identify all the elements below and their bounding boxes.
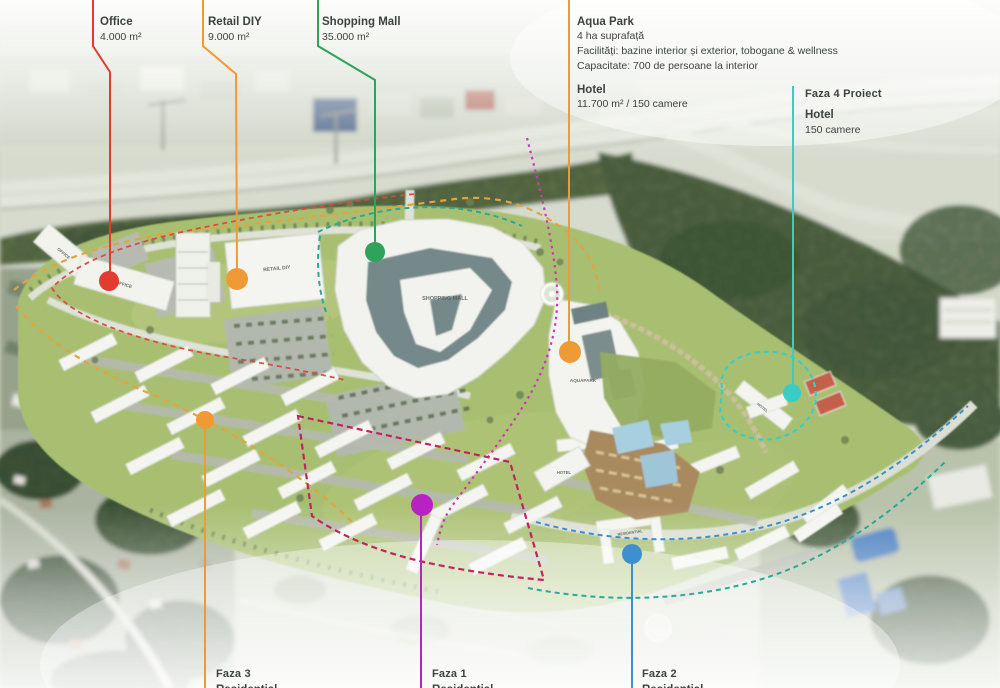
label-top-hotel4: Faza 4 Proiect Hotel 150 camere <box>805 88 882 137</box>
project-name: Aqua Park <box>577 15 838 29</box>
mall-building-label: SHOPPING MALL <box>422 296 468 302</box>
label-top-aquapark: Faza 2 Proiect Aqua Park 4 ha suprafață … <box>577 0 838 112</box>
phase-title: Faza 2 Proiect <box>208 0 285 4</box>
label-top-retail: Faza 2 Proiect Retail DIY 9.000 m² <box>208 0 285 44</box>
label-top-office: Faza 3 Proiect Office 4.000 m² <box>100 0 177 44</box>
project-name: Retail DIY <box>208 15 285 29</box>
marker-faza2-aqua <box>559 341 581 363</box>
phase-title: Faza 3 Proiect <box>100 0 177 4</box>
label-bottom-faza3: Faza 3 Residential <box>216 668 277 688</box>
project-name: Office <box>100 15 177 29</box>
label-top-mall: Faza 1 Proiect Shopping Mall 35.000 m² <box>322 0 401 44</box>
masterplan-screenshot: SHOPPING MALL RETAIL DIY OFFICE OFFICE A… <box>0 0 1000 688</box>
project-name: Residential <box>216 683 277 688</box>
marker-faza4-hotel <box>783 384 801 402</box>
hotel-site-building-label: HOTEL <box>557 470 572 475</box>
project-name: Residential <box>642 683 703 688</box>
project-detail: Facilități: bazine interior și exterior,… <box>577 44 838 59</box>
project-detail: 150 camere <box>805 124 882 137</box>
label-bottom-faza2: Faza 2 Residential <box>642 668 703 688</box>
marker-faza1-mall <box>365 242 385 262</box>
phase-title: Faza 2 <box>642 668 703 681</box>
phase-title: Faza 2 Proiect <box>577 0 838 4</box>
project-detail: 11.700 m² / 150 camere <box>577 97 838 112</box>
project-area: 4.000 m² <box>100 31 177 44</box>
aquapark-building-label: AQUAPARK <box>570 378 597 383</box>
phase-title: Faza 1 Proiect <box>322 0 401 4</box>
marker-faza3-residential <box>196 411 214 429</box>
project-name: Shopping Mall <box>322 15 401 29</box>
project-detail: Capacitate: 700 de persoane la interior <box>577 59 838 74</box>
project-area: 9.000 m² <box>208 31 285 44</box>
project-name: Hotel <box>805 108 882 122</box>
phase-title: Faza 3 <box>216 668 277 681</box>
marker-faza1-residential <box>411 494 433 516</box>
marker-faza2-residential <box>622 544 642 564</box>
marker-faza2-retail <box>226 268 248 290</box>
project-area: 35.000 m² <box>322 31 401 44</box>
phase-title: Faza 1 <box>432 668 493 681</box>
project-name: Residential <box>432 683 493 688</box>
marker-faza3-office <box>99 271 119 291</box>
roundabout-central <box>540 282 564 306</box>
phase-title: Faza 4 Proiect <box>805 88 882 101</box>
project-name-secondary: Hotel <box>577 83 838 97</box>
project-detail: 4 ha suprafață <box>577 29 838 44</box>
label-bottom-faza1: Faza 1 Residential <box>432 668 493 688</box>
